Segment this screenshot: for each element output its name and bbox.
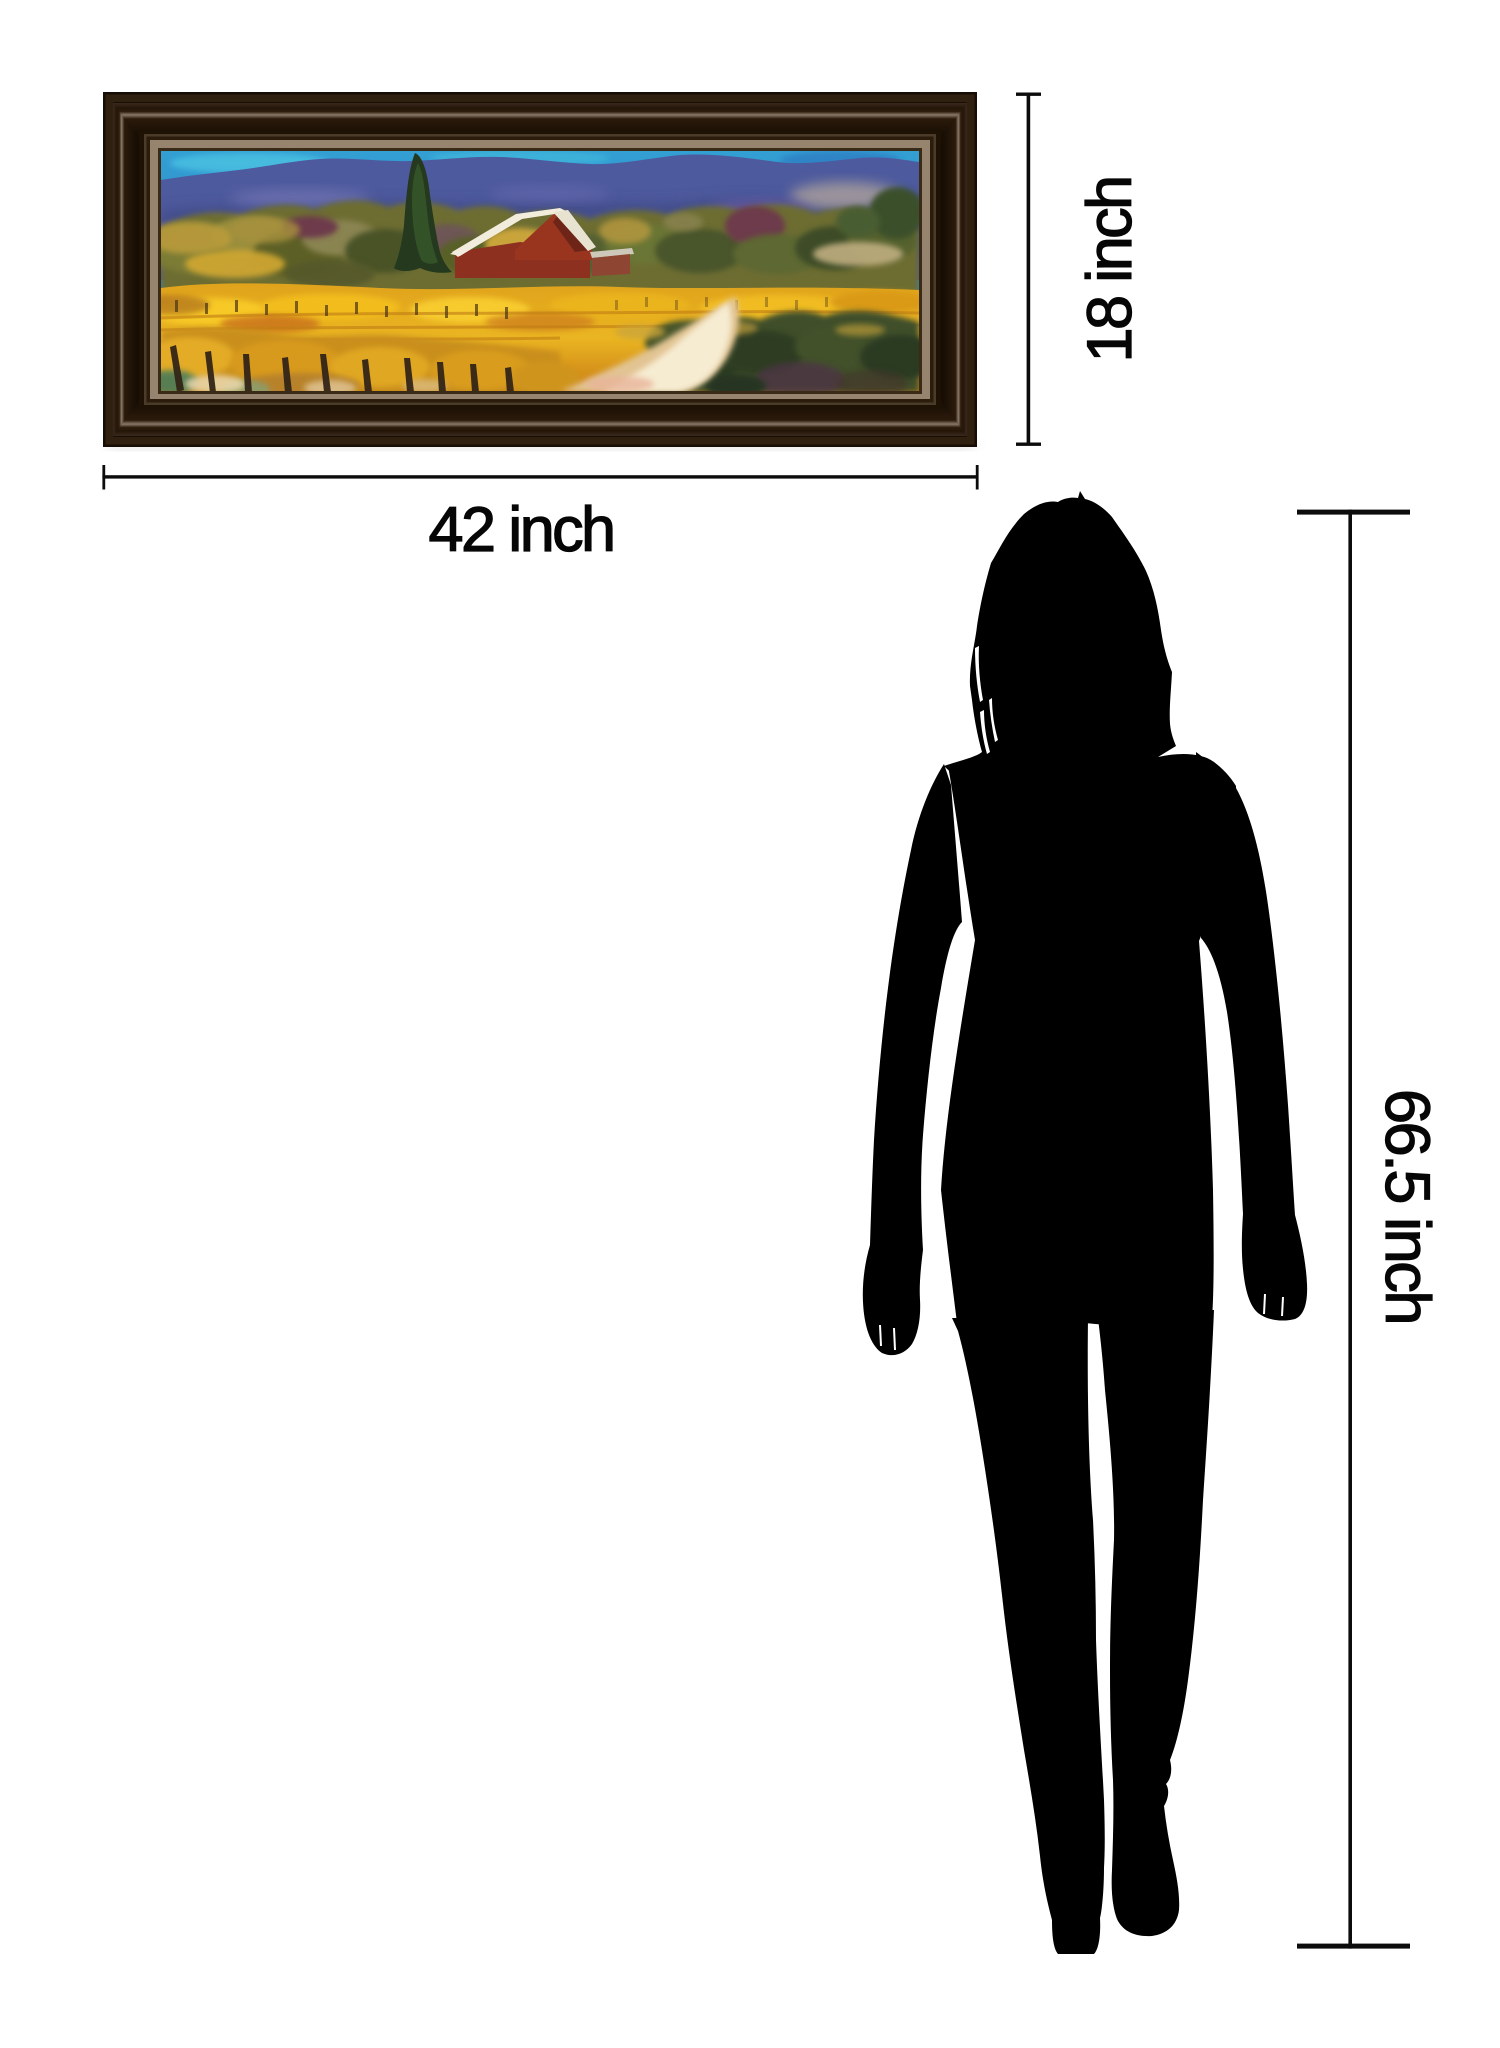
svg-text:66.5 inch: 66.5 inch [1372, 1089, 1442, 1323]
svg-text:42 inch: 42 inch [429, 495, 614, 565]
svg-text:18 inch: 18 inch [1075, 178, 1145, 363]
